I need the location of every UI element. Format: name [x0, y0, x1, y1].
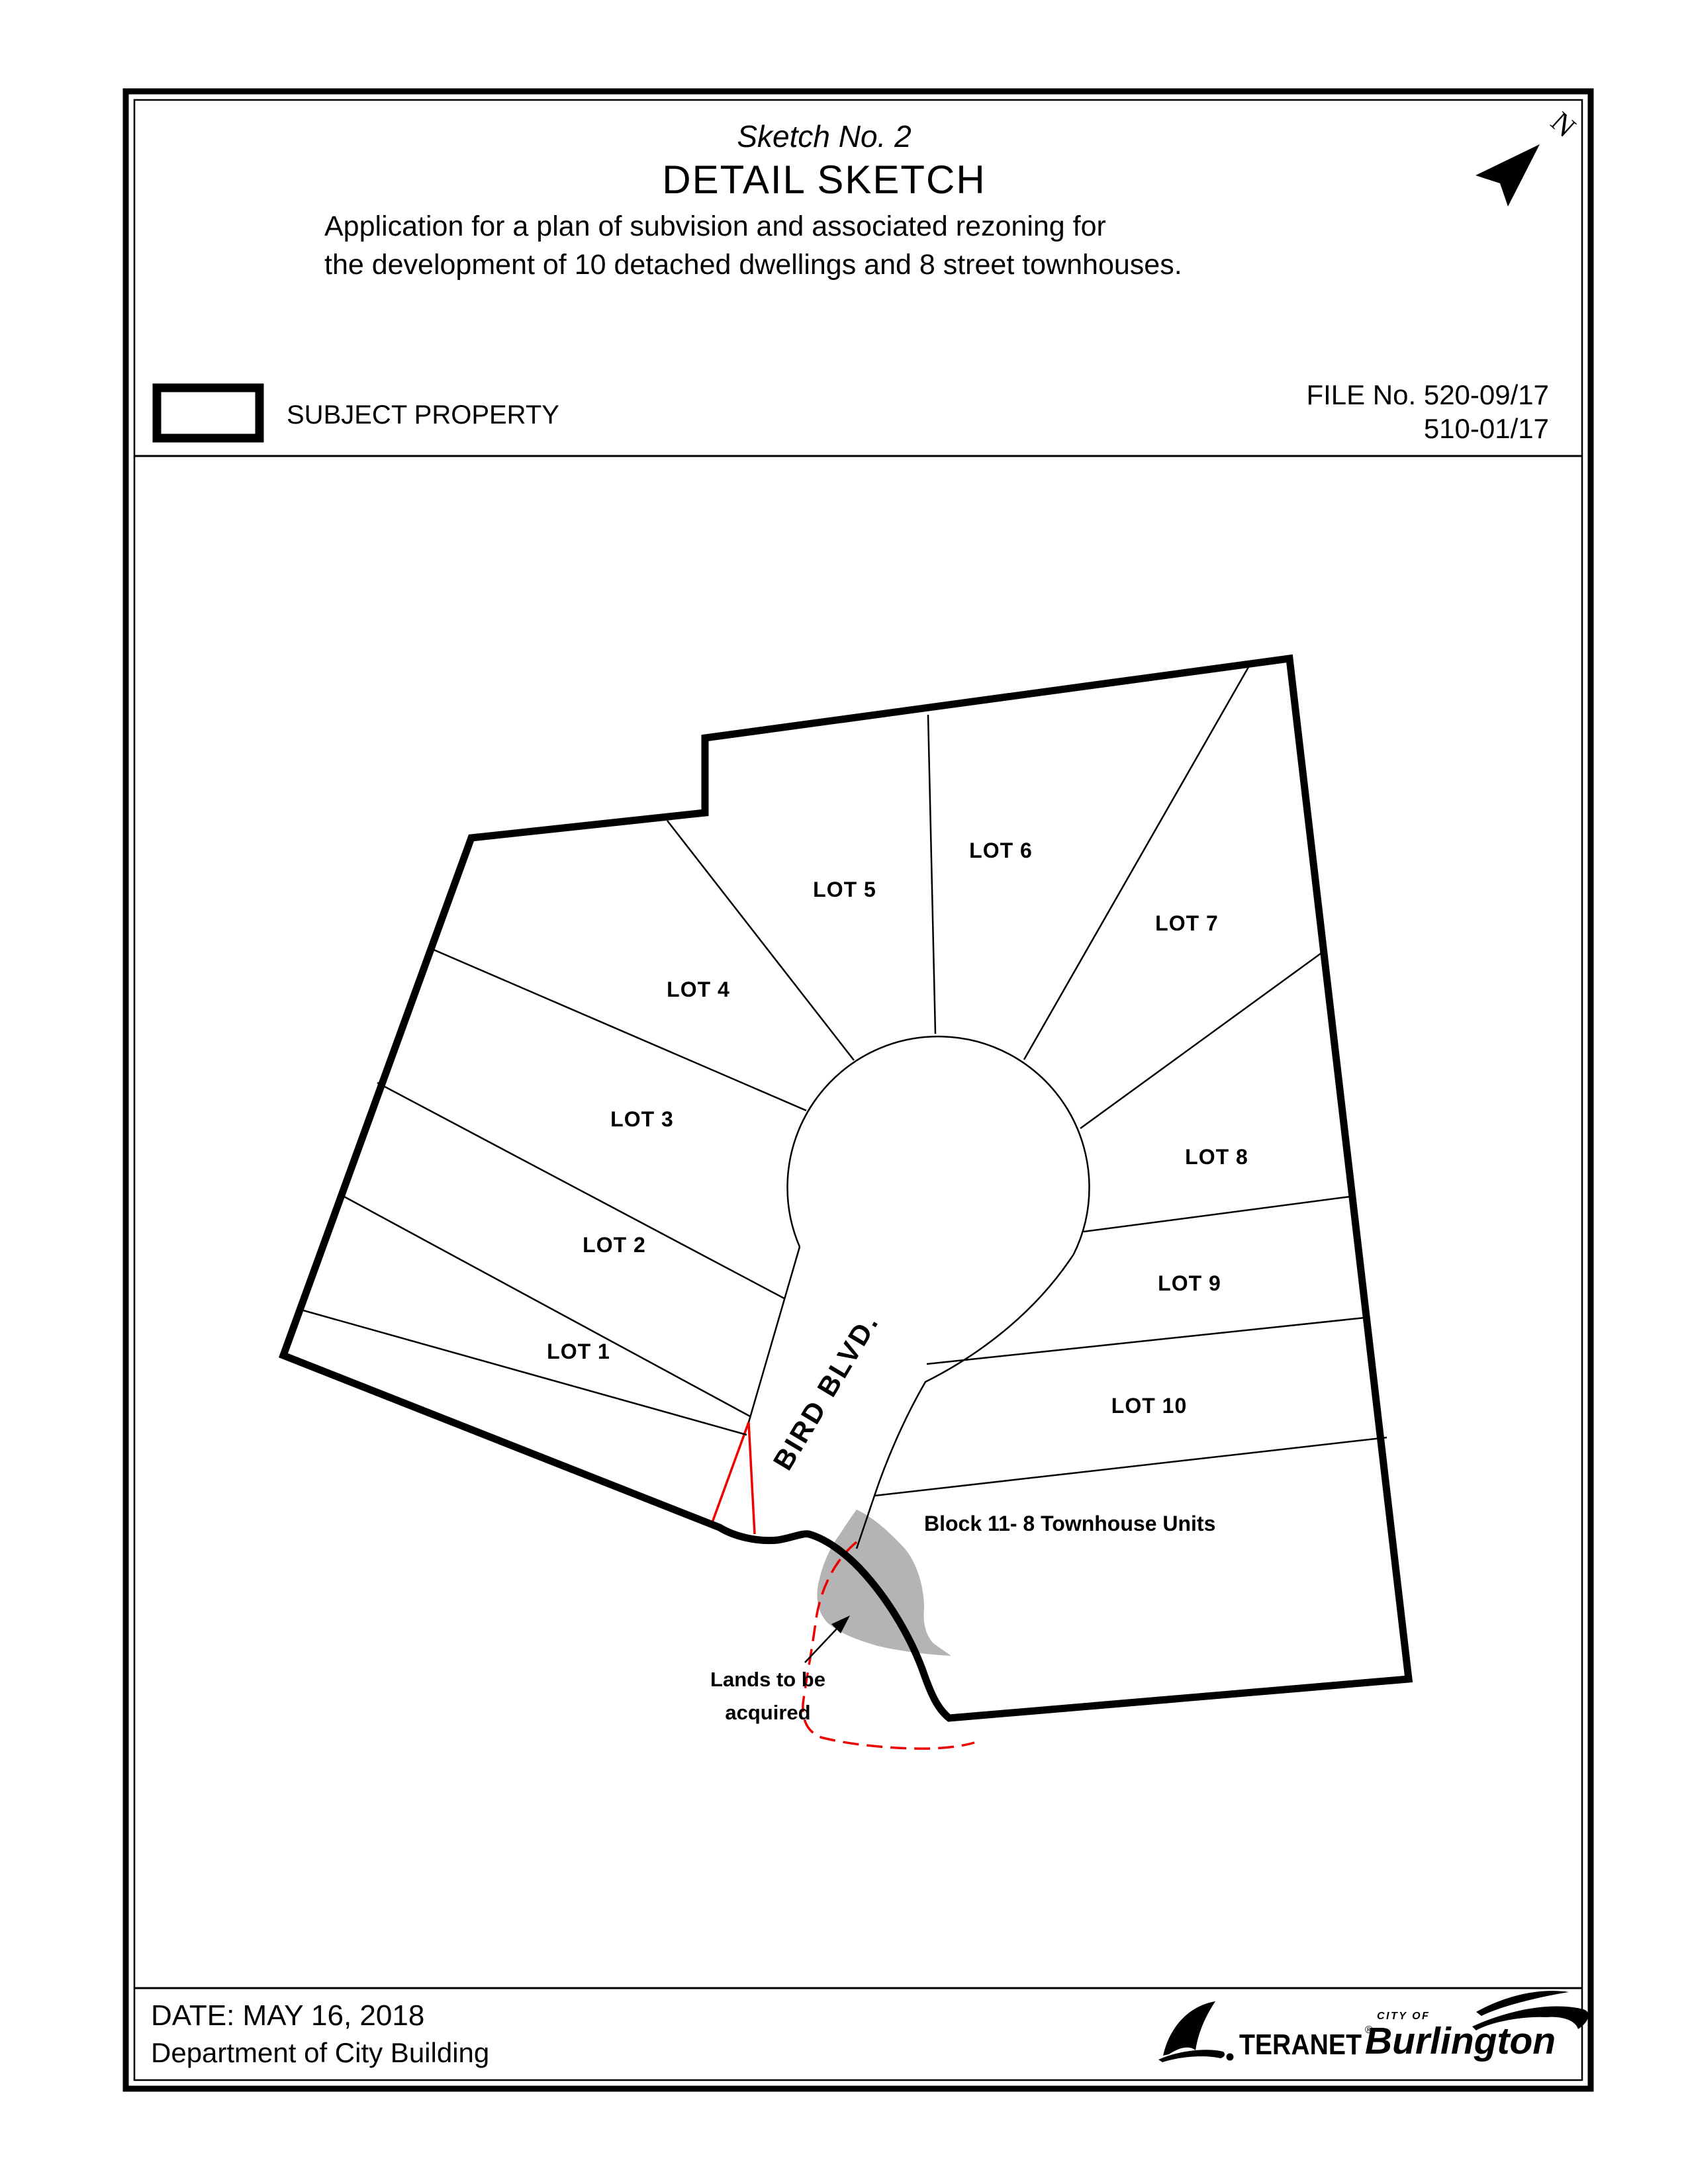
subject-property-boundary — [283, 659, 1409, 1718]
description-line-1: Application for a plan of subvision and … — [324, 210, 1106, 242]
lot-label-4: LOT 4 — [667, 978, 730, 1001]
legend-label: SUBJECT PROPERTY — [287, 400, 559, 430]
street-edge-left — [749, 1247, 800, 1422]
burlington-wordmark: Burlington — [1365, 2020, 1556, 2062]
footer-department: Department of City Building — [151, 2037, 489, 2068]
lot-label-2: LOT 2 — [583, 1233, 646, 1257]
daylight-triangle-right-leg — [749, 1422, 755, 1534]
lot-line-10-block11 — [874, 1437, 1387, 1496]
street-edge-right — [857, 1254, 1074, 1549]
lot-label-8: LOT 8 — [1185, 1145, 1248, 1169]
legend-swatch-subject-property — [157, 388, 259, 438]
description-line-2: the development of 10 detached dwellings… — [324, 249, 1182, 281]
north-arrow-icon: N — [1476, 105, 1582, 206]
lot-line-6-7 — [1024, 667, 1248, 1060]
lot-line-8-9 — [1084, 1197, 1350, 1232]
sketch-number: Sketch No. 2 — [737, 119, 911, 154]
page-title: DETAIL SKETCH — [662, 158, 986, 202]
teranet-logo: TERANET ® — [1158, 2001, 1373, 2062]
street-label: BIRD BLVD. — [767, 1308, 885, 1475]
teranet-wordmark: TERANET — [1239, 2028, 1362, 2061]
lot-line-1-south — [299, 1309, 747, 1435]
lands-label-line-2: acquired — [725, 1701, 810, 1724]
lot-label-5: LOT 5 — [813, 878, 876, 901]
lot-label-10: LOT 10 — [1111, 1394, 1187, 1418]
north-label: N — [1544, 105, 1581, 144]
lot-label-7: LOT 7 — [1155, 911, 1219, 935]
lot-label-3: LOT 3 — [610, 1107, 674, 1131]
burlington-logo: CITY OF Burlington — [1365, 1991, 1589, 2062]
lot-label-9: LOT 9 — [1158, 1271, 1221, 1295]
file-number-line-1: FILE No. 520-09/17 — [1306, 379, 1549, 410]
lot-label-6: LOT 6 — [969, 839, 1033, 862]
daylight-triangle-left-leg — [712, 1422, 749, 1524]
block-11-label: Block 11- 8 Townhouse Units — [924, 1512, 1215, 1535]
lot-line-7-8 — [1080, 950, 1326, 1128]
lot-line-4-5 — [667, 821, 854, 1060]
footer-date: DATE: MAY 16, 2018 — [151, 1999, 424, 2032]
lot-line-2-3 — [377, 1083, 784, 1298]
lot-line-3-4 — [434, 950, 806, 1111]
cul-de-sac-circle — [788, 1036, 1090, 1254]
file-number-line-2: 510-01/17 — [1424, 413, 1549, 444]
detail-sketch-page: Sketch No. 2 DETAIL SKETCH Application f… — [0, 0, 1688, 2184]
lot-label-1: LOT 1 — [547, 1340, 610, 1363]
lands-label-line-1: Lands to be — [710, 1668, 825, 1691]
lot-line-1-2 — [342, 1195, 750, 1416]
lot-line-5-6 — [928, 715, 935, 1034]
teranet-mark-icon — [1158, 2001, 1234, 2062]
